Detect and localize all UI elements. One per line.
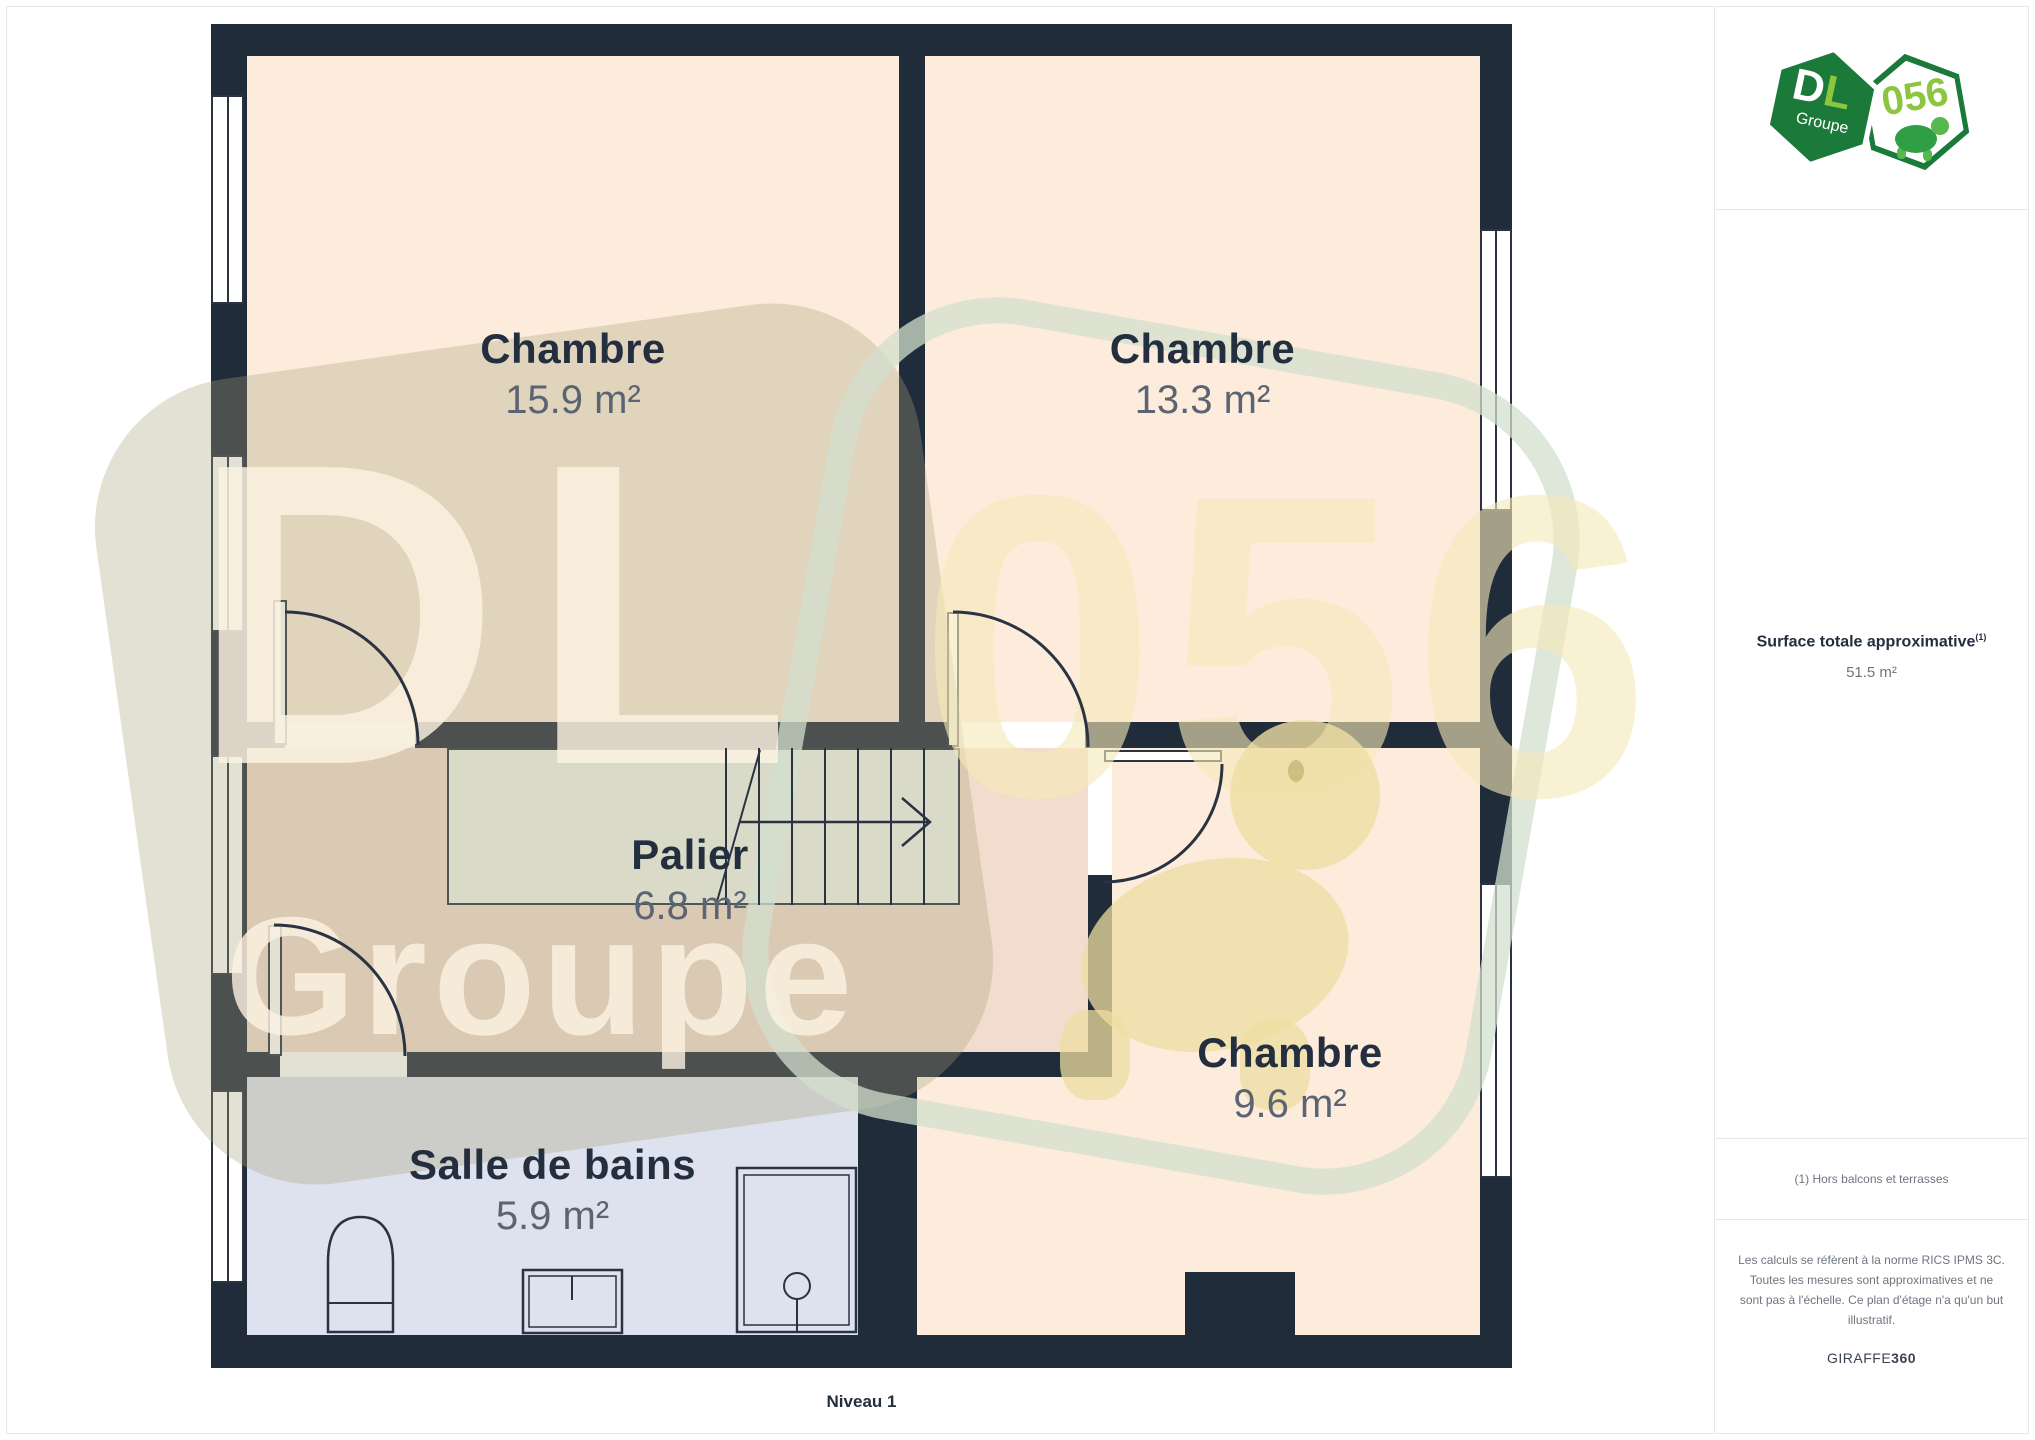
giraffe360-brand: GIRAFFE360 (1715, 1350, 2028, 1366)
door-arc-chambre2 (953, 612, 1088, 747)
label-palier: Palier 6.8 m² (440, 832, 940, 929)
footnote-text: (1) Hors balcons et terrasses (1794, 1172, 1948, 1186)
surface-total-value: 51.5 m² (1715, 664, 2028, 681)
floorplan-page: DL Groupe 056 Cha (0, 0, 2035, 1440)
room-name: Palier (440, 832, 940, 878)
disclaimer-text: Les calculs se réfèrent à la norme RICS … (1738, 1250, 2006, 1330)
room-area: 9.6 m² (1100, 1081, 1480, 1127)
label-chambre3: Chambre 9.6 m² (1100, 1030, 1480, 1127)
footnote-marker: (1) (1975, 632, 1986, 642)
room-area: 15.9 m² (247, 377, 899, 423)
room-area: 5.9 m² (247, 1193, 858, 1239)
label-chambre2: Chambre 13.3 m² (925, 326, 1480, 423)
surface-total-title: Surface totale approximative(1) (1715, 632, 2028, 651)
shower-drain (784, 1273, 810, 1299)
label-salle-de-bains: Salle de bains 5.9 m² (247, 1142, 858, 1239)
footnote-section: (1) Hors balcons et terrasses (1715, 1138, 2028, 1219)
info-sidebar: 056 DL Groupe Surface totale approximati… (1714, 7, 2028, 1433)
room-area: 6.8 m² (440, 883, 940, 929)
room-name: Chambre (925, 326, 1480, 372)
level-label: Niveau 1 (211, 1392, 1512, 1412)
logo-section: 056 DL Groupe (1715, 7, 2028, 210)
room-name: Chambre (1100, 1030, 1480, 1076)
room-area: 13.3 m² (925, 377, 1480, 423)
door-arc-chambre3 (1104, 764, 1222, 882)
dl-groupe-056-logo: 056 DL Groupe (1767, 47, 1977, 177)
room-name: Salle de bains (247, 1142, 858, 1188)
disclaimer-section: Les calculs se réfèrent à la norme RICS … (1715, 1219, 2028, 1433)
room-name: Chambre (247, 326, 899, 372)
label-chambre1: Chambre 15.9 m² (247, 326, 899, 423)
door-arc-salle-de-bains (274, 925, 405, 1056)
door-arc-chambre1 (285, 612, 418, 745)
